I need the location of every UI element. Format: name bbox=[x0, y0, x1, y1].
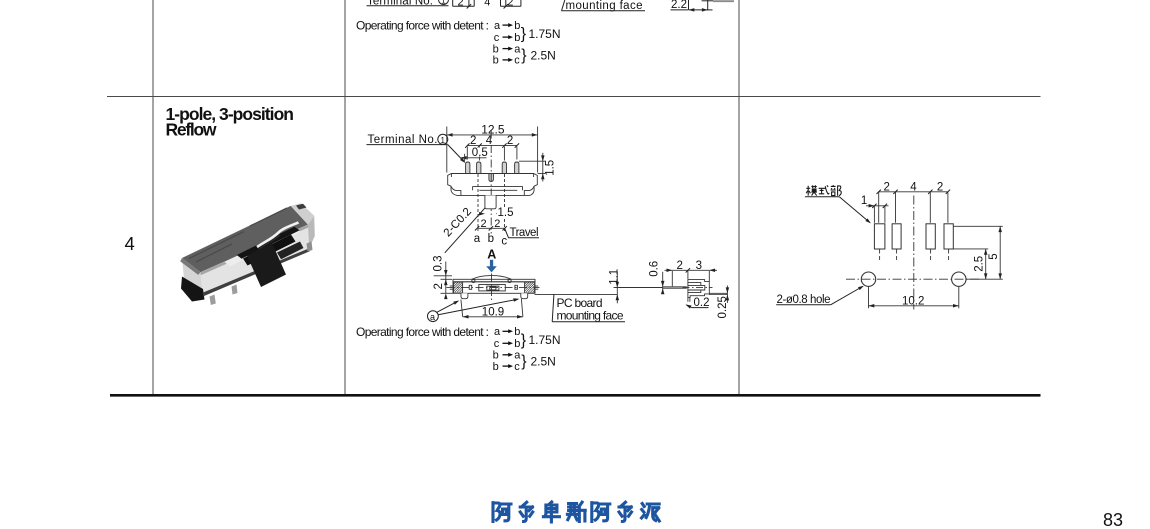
svg-text:12.5: 12.5 bbox=[481, 122, 505, 136]
svg-text:0.25: 0.25 bbox=[717, 296, 729, 318]
svg-text:2-C0.2: 2-C0.2 bbox=[442, 206, 474, 239]
svg-text:2: 2 bbox=[677, 260, 683, 272]
svg-text:2.5: 2.5 bbox=[974, 256, 986, 272]
svg-text:2: 2 bbox=[458, 0, 464, 8]
svg-text:a: a bbox=[474, 233, 481, 245]
svg-text:Reflow: Reflow bbox=[166, 120, 217, 140]
svg-text:2: 2 bbox=[884, 181, 890, 193]
svg-text:1.1: 1.1 bbox=[609, 269, 621, 285]
svg-text:A: A bbox=[487, 248, 496, 262]
svg-text:1: 1 bbox=[861, 195, 867, 207]
svg-text:b: b bbox=[488, 233, 494, 245]
svg-text:1.5: 1.5 bbox=[545, 160, 557, 176]
svg-text:2: 2 bbox=[481, 218, 487, 230]
svg-text:2: 2 bbox=[494, 218, 500, 230]
svg-text:Travel: Travel bbox=[510, 227, 539, 239]
svg-text:3: 3 bbox=[696, 260, 702, 272]
svg-text:2: 2 bbox=[507, 0, 513, 8]
svg-text:0.6: 0.6 bbox=[648, 261, 660, 277]
svg-text:4: 4 bbox=[484, 0, 490, 8]
svg-text:4: 4 bbox=[910, 181, 917, 193]
svg-text:mounting face: mounting face bbox=[557, 309, 624, 323]
svg-text:1: 1 bbox=[441, 0, 446, 6]
svg-text:10.2: 10.2 bbox=[902, 295, 924, 307]
svg-text:2: 2 bbox=[433, 283, 445, 289]
svg-text:2: 2 bbox=[507, 135, 513, 147]
svg-text:4: 4 bbox=[125, 233, 135, 254]
svg-text:2.2: 2.2 bbox=[671, 0, 687, 11]
svg-text:10.9: 10.9 bbox=[482, 306, 504, 318]
svg-text:Terminal No.: Terminal No. bbox=[367, 0, 433, 8]
svg-text:c: c bbox=[501, 235, 507, 247]
svg-text:0.5: 0.5 bbox=[472, 147, 488, 159]
svg-text:2-ø0.8 hole: 2-ø0.8 hole bbox=[777, 294, 831, 306]
svg-text:4: 4 bbox=[486, 135, 493, 147]
svg-text:a: a bbox=[430, 312, 435, 322]
svg-text:1: 1 bbox=[441, 136, 446, 145]
svg-text:2: 2 bbox=[470, 135, 476, 147]
svg-text:83: 83 bbox=[1103, 510, 1123, 529]
svg-text:5: 5 bbox=[988, 253, 1000, 259]
svg-text:0.3: 0.3 bbox=[433, 256, 445, 272]
svg-text:2: 2 bbox=[937, 181, 943, 193]
